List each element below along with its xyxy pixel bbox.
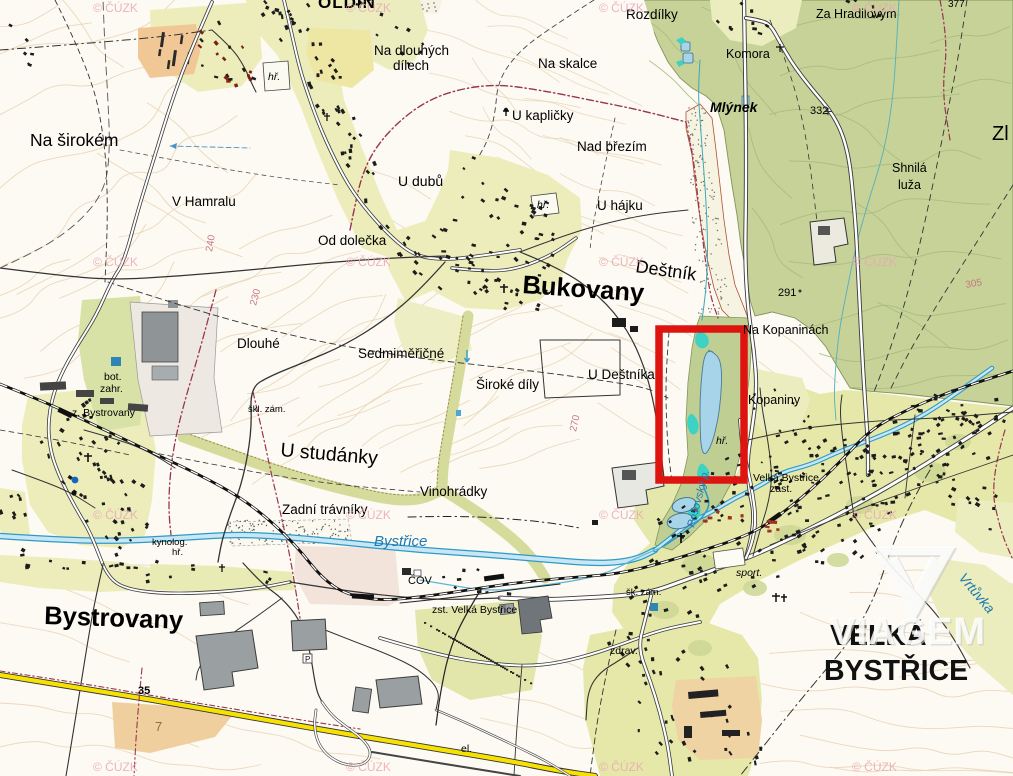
svg-text:BYSTŘICE: BYSTŘICE	[824, 655, 968, 687]
svg-text:© ČÚZK: © ČÚZK	[93, 759, 138, 774]
svg-text:VIAGEM: VIAGEM	[830, 611, 986, 653]
svg-text:Na širokém: Na širokém	[30, 130, 119, 150]
svg-text:© ČÚZK: © ČÚZK	[852, 507, 897, 522]
svg-text:Bystřice: Bystřice	[374, 533, 427, 550]
svg-text:luža: luža	[898, 178, 921, 192]
svg-text:škl. zám.: škl. zám.	[248, 404, 285, 415]
svg-text:zahr.: zahr.	[100, 383, 123, 395]
svg-text:hř.: hř.	[172, 547, 183, 558]
svg-text:© ČÚZK: © ČÚZK	[852, 759, 897, 774]
svg-text:P: P	[305, 655, 310, 664]
svg-text:zst. Velká Bystřice: zst. Velká Bystřice	[432, 604, 517, 616]
svg-text:Sedmiměřičné: Sedmiměřičné	[358, 346, 444, 361]
svg-text:© ČÚZK: © ČÚZK	[852, 0, 897, 15]
svg-text:© ČÚZK: © ČÚZK	[599, 0, 644, 15]
svg-text:Kopaniny: Kopaniny	[748, 393, 801, 407]
svg-text:© ČÚZK: © ČÚZK	[93, 254, 138, 269]
svg-text:© ČÚZK: © ČÚZK	[346, 507, 391, 522]
svg-text:© ČÚZK: © ČÚZK	[346, 254, 391, 269]
svg-text:dílech: dílech	[393, 58, 429, 73]
svg-text:Shnilá: Shnilá	[892, 161, 927, 175]
svg-text:hř.: hř.	[537, 199, 549, 211]
svg-text:Komora: Komora	[726, 47, 770, 61]
svg-text:el.: el.	[461, 743, 472, 755]
svg-text:Nad březím: Nad březím	[577, 139, 647, 154]
svg-text:U Deštníka: U Deštníka	[588, 367, 655, 382]
svg-text:291: 291	[778, 287, 796, 299]
svg-text:ČOV: ČOV	[408, 574, 433, 587]
svg-text:zast.: zast.	[770, 483, 792, 495]
svg-text:Široké díly: Široké díly	[476, 377, 539, 392]
svg-text:V Hamralu: V Hamralu	[172, 194, 236, 209]
svg-text:U kapličky: U kapličky	[512, 108, 574, 123]
svg-text:© ČÚZK: © ČÚZK	[346, 759, 391, 774]
svg-text:© ČÚZK: © ČÚZK	[346, 0, 391, 15]
svg-text:332: 332	[810, 105, 828, 117]
svg-text:U dubů: U dubů	[398, 173, 443, 189]
svg-text:35: 35	[138, 685, 150, 697]
svg-text:377: 377	[948, 0, 965, 10]
svg-text:Na dlouhých: Na dlouhých	[374, 43, 449, 58]
svg-text:© ČÚZK: © ČÚZK	[93, 0, 138, 15]
svg-text:© ČÚZK: © ČÚZK	[599, 254, 644, 269]
svg-text:hř.: hř.	[268, 71, 280, 83]
svg-text:hř.: hř.	[716, 435, 728, 447]
svg-text:šk. zám.: šk. zám.	[626, 587, 661, 598]
svg-text:zdrav.: zdrav.	[610, 645, 638, 657]
svg-text:© ČÚZK: © ČÚZK	[852, 254, 897, 269]
svg-text:U hájku: U hájku	[597, 198, 643, 213]
svg-text:Na Kopaninách: Na Kopaninách	[743, 323, 829, 337]
svg-text:Bystrovany: Bystrovany	[44, 602, 185, 635]
svg-text:Dlouhé: Dlouhé	[237, 336, 280, 351]
svg-text:Zl: Zl	[992, 123, 1009, 145]
svg-text:Od dolečka: Od dolečka	[318, 233, 387, 248]
svg-text:© ČÚZK: © ČÚZK	[93, 507, 138, 522]
svg-text:Na skalce: Na skalce	[538, 56, 597, 71]
svg-text:z. Bystrovany: z. Bystrovany	[72, 407, 136, 419]
svg-text:Mlýnek: Mlýnek	[710, 99, 759, 115]
svg-text:7: 7	[155, 719, 162, 734]
svg-text:© ČÚZK: © ČÚZK	[599, 759, 644, 774]
svg-text:bot.: bot.	[104, 371, 122, 383]
svg-text:sport.: sport.	[736, 567, 762, 579]
svg-text:Vinohrádky: Vinohrádky	[420, 484, 488, 499]
svg-text:© ČÚZK: © ČÚZK	[599, 507, 644, 522]
